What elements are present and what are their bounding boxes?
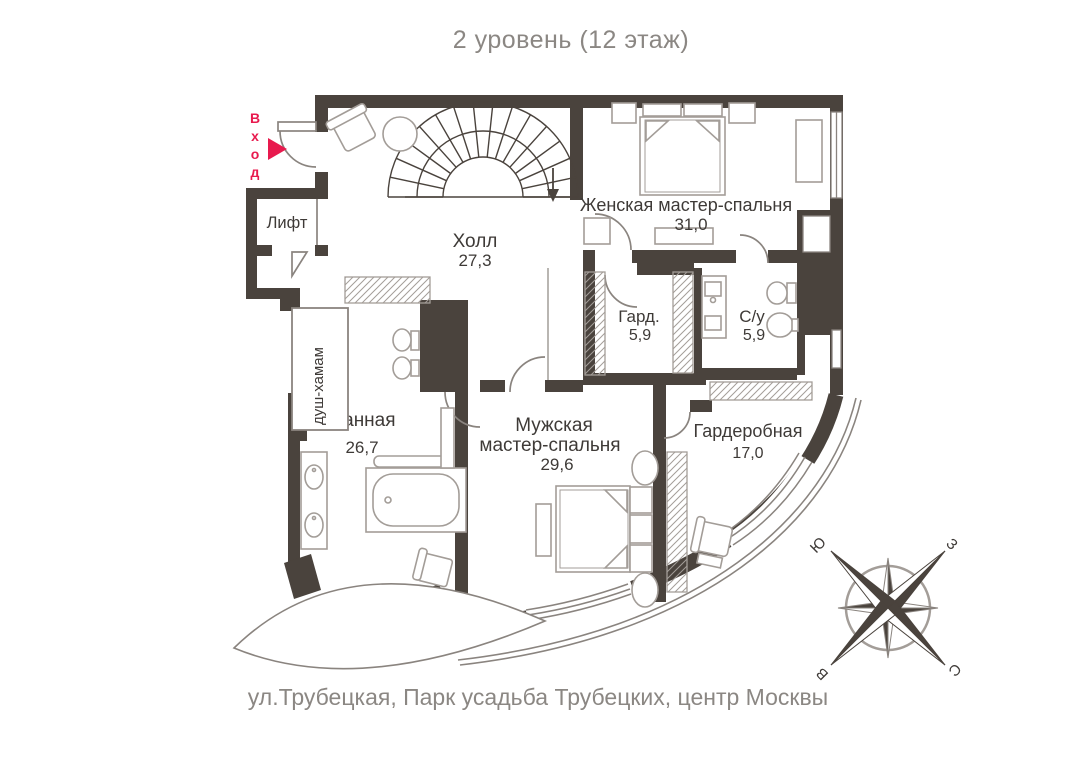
room-wc-area: 5,9 xyxy=(743,327,765,344)
cabinet xyxy=(441,408,454,468)
nightstand xyxy=(612,103,636,123)
compass-west-label: З xyxy=(942,535,960,553)
room-wc-label: С/у xyxy=(739,307,765,326)
cabinet xyxy=(584,218,610,244)
room-wardrobe-area: 5,9 xyxy=(629,327,651,344)
bed-female xyxy=(640,104,725,195)
door-arc xyxy=(664,412,690,438)
vanity xyxy=(301,452,327,549)
folding-door xyxy=(292,252,307,276)
pouf xyxy=(632,573,658,607)
room-male-bedroom-label-2: мастер-спальня xyxy=(479,435,620,456)
floor-plan: Ю З В С Лифт Холл 27,3 Женская мастер-сп… xyxy=(0,0,1076,768)
spiral-staircase xyxy=(388,102,578,202)
floor-plan-page: Ю З В С Лифт Холл 27,3 Женская мастер-сп… xyxy=(0,0,1076,768)
armchair xyxy=(325,103,380,155)
door-arc xyxy=(740,235,768,263)
entrance-arrow-icon xyxy=(268,138,287,160)
compass-north-label: С xyxy=(945,660,965,680)
toilet-icon xyxy=(767,282,787,304)
nightstand xyxy=(729,103,755,123)
compass-south-label: Ю xyxy=(807,534,830,557)
toilet-icon xyxy=(787,283,796,303)
bathroom-wc xyxy=(393,329,419,379)
dresser xyxy=(796,120,822,182)
room-bathroom-area: 26,7 xyxy=(345,438,378,457)
room-hall-area: 27,3 xyxy=(458,251,491,270)
compass-rose-icon: Ю З В С xyxy=(807,534,965,683)
room-male-bedroom-area: 29,6 xyxy=(540,455,573,474)
page-title: 2 уровень (12 этаж) xyxy=(171,26,971,55)
door-arc xyxy=(605,275,637,307)
bench xyxy=(536,504,551,556)
room-female-bedroom-label: Женская мастер-спальня xyxy=(580,195,792,215)
entry-door-leaf xyxy=(278,122,316,131)
terrace-leaf xyxy=(234,584,545,669)
toilet-icon xyxy=(393,329,411,351)
stool xyxy=(412,548,454,588)
door-arc xyxy=(510,357,545,392)
room-lift-label: Лифт xyxy=(267,214,308,232)
address-caption: ул.Трубецкая, Парк усадьба Трубецких, це… xyxy=(138,684,938,711)
entrance-label: Вход xyxy=(247,110,263,182)
room-male-bedroom-label-1: Мужская xyxy=(515,415,593,436)
room-hammam-label: душ-хамам xyxy=(310,315,327,425)
room-wardrobe-label: Гард. xyxy=(618,307,659,326)
pouf xyxy=(632,451,658,485)
room-hall-label: Холл xyxy=(453,231,498,252)
room-dressing-area: 17,0 xyxy=(732,445,763,462)
room-female-bedroom-area: 31,0 xyxy=(674,215,707,234)
compass-east-label: В xyxy=(813,664,832,683)
round-table xyxy=(383,117,417,151)
bidet-icon xyxy=(393,357,411,379)
sink-icon xyxy=(767,313,793,337)
room-dressing-label: Гардеробная xyxy=(694,421,803,441)
bed-male xyxy=(556,486,652,572)
